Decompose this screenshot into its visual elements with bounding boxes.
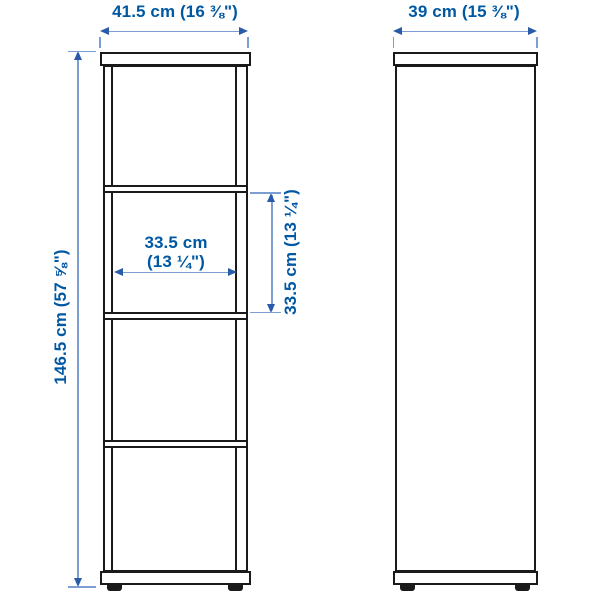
arrow-left-icon (100, 27, 109, 35)
side-depth-dimension-label: 39 cm (15 ⅜") (408, 2, 519, 22)
shelf-divider-3 (105, 440, 246, 448)
arrow-right-icon (528, 27, 537, 35)
extension-line (247, 37, 249, 48)
extension-line (99, 37, 101, 48)
dimension-line (271, 195, 273, 310)
product-dimension-diagram: 41.5 cm (16 ⅜") 39 cm (15 ⅜") 146.5 cm (… (0, 0, 600, 600)
inner-width-value: 33.5 cm (144, 233, 207, 252)
side-foot-right (515, 585, 530, 591)
shelf-divider-1 (105, 185, 246, 193)
extension-line (393, 37, 395, 48)
front-foot-right (228, 585, 243, 591)
extension-line (250, 192, 281, 194)
extension-line (68, 51, 96, 53)
arrow-right-icon (239, 27, 248, 35)
side-body-outline (395, 65, 536, 572)
side-bottom-panel (393, 571, 538, 585)
dimension-line (397, 31, 533, 33)
front-width-dimension-label: 41.5 cm (16 ⅜") (112, 2, 238, 22)
front-foot-left (107, 585, 122, 591)
inner-width-imperial: (13 ¼") (147, 252, 205, 271)
side-top-panel (393, 52, 538, 66)
arrow-left-icon (114, 268, 123, 276)
arrow-right-icon (228, 268, 237, 276)
extension-line (536, 37, 538, 48)
dimension-line (104, 31, 244, 33)
side-foot-left (400, 585, 415, 591)
shelf-divider-2 (105, 312, 246, 320)
arrow-left-icon (393, 27, 402, 35)
inner-width-dimension-label: 33.5 cm (13 ¼") (111, 233, 241, 271)
arrow-up-icon (74, 51, 82, 60)
extension-line (68, 586, 96, 588)
height-dimension-label: 146.5 cm (57 ⅝") (51, 249, 71, 384)
front-top-panel (100, 52, 251, 66)
front-bottom-panel (100, 571, 251, 585)
extension-line (250, 312, 281, 314)
dimension-line (118, 272, 233, 274)
arrow-up-icon (267, 193, 275, 202)
inner-height-dimension-label: 33.5 cm (13 ¼") (281, 189, 301, 315)
dimension-line (77, 53, 79, 584)
